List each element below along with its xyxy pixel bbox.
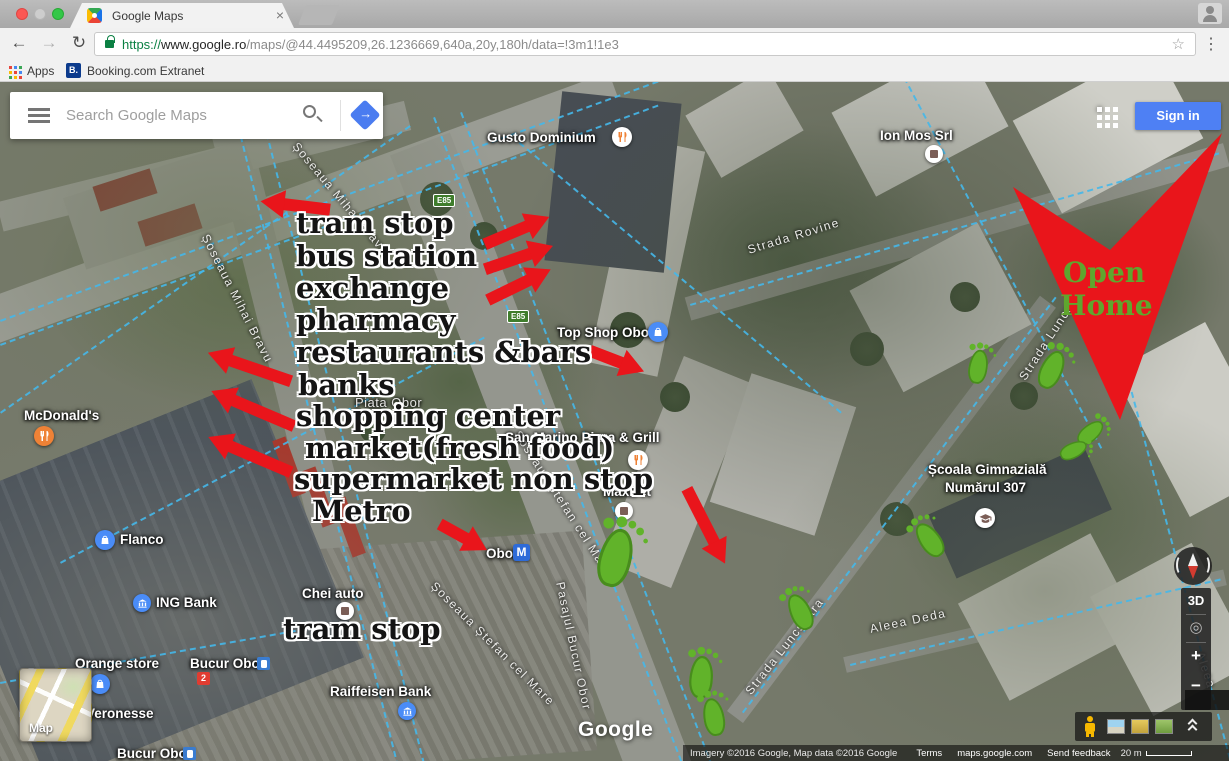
imagery-thumbnail[interactable] [1107, 719, 1125, 734]
attribution-bar: Imagery ©2016 Google, Map data ©2016 Goo… [683, 745, 1229, 761]
poi-label[interactable]: Veronesse [86, 706, 154, 721]
tram-glyph-icon [187, 750, 193, 758]
open-home-label-line1: Open [1063, 256, 1145, 289]
rotate-right-icon[interactable] [1200, 555, 1210, 575]
satellite-tint-overlay [0, 82, 1229, 761]
google-logo: Google [578, 718, 653, 742]
metro-station-icon[interactable]: M [513, 544, 530, 561]
annotation-text: banks [298, 368, 395, 402]
poi-label[interactable]: McDonald's [24, 408, 99, 423]
bank-icon[interactable] [398, 702, 416, 720]
apps-grid-icon[interactable] [9, 66, 12, 69]
footprint-toes [1081, 434, 1088, 441]
tab-title: Google Maps [112, 9, 183, 23]
rotate-left-icon[interactable] [1176, 555, 1186, 575]
shopping-icon[interactable] [90, 674, 110, 694]
bookmark-apps[interactable]: Apps [27, 64, 54, 78]
footprint-toes [1046, 341, 1056, 351]
bank-icon[interactable] [133, 594, 151, 612]
route-badge-e85: E85 [507, 310, 529, 323]
footprint-toes [969, 343, 976, 350]
annotation-text: market(fresh food) [305, 431, 614, 465]
window-close-button[interactable] [16, 8, 28, 20]
imagery-toolbar [1075, 712, 1212, 741]
tram-station-icon[interactable] [257, 657, 270, 670]
browser-toolbar: ← → ↻ https://www.google.ro/maps/@44.449… [0, 28, 1229, 60]
bookmark-booking[interactable]: Booking.com Extranet [87, 64, 204, 78]
scale-bar [1146, 751, 1192, 756]
annotation-text: Metro [312, 494, 411, 528]
zoom-in-button[interactable]: + [1181, 646, 1211, 666]
poi-label[interactable]: Gusto Dominium [487, 130, 596, 145]
poi-label[interactable]: Bucur Obor [117, 746, 192, 761]
browser-titlebar: Google Maps × [0, 0, 1229, 28]
tram-station-icon[interactable] [183, 747, 196, 760]
annotation-text: tram stop [283, 612, 441, 646]
my-location-button[interactable]: ◎ [1181, 618, 1211, 636]
maps-site-link[interactable]: maps.google.com [957, 748, 1032, 759]
annotation-text: restaurants &bars [296, 335, 591, 369]
shopping-icon[interactable] [95, 530, 115, 550]
3d-button[interactable]: 3D [1181, 593, 1211, 608]
bookmarks-bar: Apps B. Booking.com Extranet [0, 60, 1229, 82]
sign-in-button[interactable]: Sign in [1135, 102, 1221, 130]
tram-glyph-icon [261, 660, 267, 668]
imagery-panel-edge [1185, 690, 1229, 710]
footprint-toes [1094, 412, 1102, 420]
imagery-thumbnail[interactable] [1155, 719, 1173, 734]
new-tab-button[interactable] [298, 5, 340, 25]
restaurant-icon[interactable] [34, 426, 54, 446]
search-card: → [10, 92, 383, 139]
compass-needle-north [1188, 553, 1198, 566]
annotation-text: supermarket non stop [294, 462, 653, 496]
booking-favicon-icon: B. [66, 63, 81, 78]
forward-button[interactable]: → [38, 33, 60, 53]
place-icon[interactable] [925, 145, 943, 163]
url-host: www.google.ro [161, 37, 246, 52]
google-apps-grid-icon[interactable] [1097, 107, 1102, 112]
footprint-sole [592, 525, 639, 590]
compass-needle-south [1188, 566, 1198, 579]
shopping-icon[interactable] [648, 322, 668, 342]
menu-hamburger-icon[interactable] [28, 108, 50, 123]
annotation-text: pharmacy [296, 303, 455, 337]
browser-tab[interactable]: Google Maps × [70, 3, 294, 28]
place-glyph-icon [930, 150, 938, 158]
route-badge-2: 2 [197, 672, 210, 685]
map-canvas[interactable]: Șoseaua Mihai Bravu Șoseaua Mihai Bravu … [0, 82, 1229, 761]
poi-label[interactable]: Raiffeisen Bank [330, 684, 431, 699]
compass-control[interactable] [1174, 547, 1212, 585]
url-bar[interactable]: https://www.google.ro/maps/@44.4495209,2… [94, 32, 1196, 56]
open-home-label-line2: Home [1060, 289, 1153, 322]
poi-label[interactable]: Ion Mos Srl [880, 128, 953, 143]
url-scheme: https:// [122, 37, 161, 52]
send-feedback-link[interactable]: Send feedback [1047, 748, 1110, 759]
footprint-sole [700, 697, 727, 738]
annotation-text: bus station [296, 239, 477, 273]
expand-chevron-icon[interactable] [1189, 720, 1198, 729]
map-inset-toggle[interactable]: Map [19, 668, 92, 742]
tab-close-icon[interactable]: × [276, 7, 284, 23]
google-maps-favicon-icon [87, 8, 102, 23]
search-input[interactable] [66, 102, 286, 129]
profile-icon[interactable] [1198, 3, 1222, 24]
footprint-toes [905, 524, 915, 534]
school-icon[interactable] [975, 508, 995, 528]
profile-head-icon [1206, 6, 1214, 14]
footprint-toes [778, 593, 787, 602]
browser-menu-icon[interactable]: ⋮ [1203, 34, 1219, 54]
bookmark-star-icon[interactable]: ☆ [1172, 35, 1185, 53]
reload-button[interactable]: ↻ [68, 33, 90, 53]
back-button[interactable]: ← [8, 33, 30, 53]
imagery-thumbnail[interactable] [1131, 719, 1149, 734]
terms-link[interactable]: Terms [916, 748, 942, 759]
poi-label[interactable]: Chei auto [302, 586, 364, 601]
inset-map-label: Map [29, 721, 53, 735]
pegman-icon[interactable] [1084, 716, 1096, 737]
annotation-text: exchange [296, 271, 449, 305]
profile-shoulders-icon [1203, 15, 1217, 22]
url-path: /maps/@44.4495209,26.1236669,640a,20y,18… [246, 37, 619, 52]
annotation-text: shopping center [296, 399, 560, 433]
footprint-toes [696, 695, 704, 703]
footprint-toes [688, 649, 696, 657]
search-icon[interactable] [303, 105, 316, 118]
annotation-text: tram stop [296, 206, 454, 240]
directions-icon[interactable]: → [349, 99, 380, 130]
url-text: https://www.google.ro/maps/@44.4495209,2… [122, 37, 619, 52]
poi-label[interactable]: Bucur Obor [190, 656, 265, 671]
footprint-toes [602, 516, 615, 529]
window-minimize-button[interactable] [34, 8, 46, 20]
poi-label[interactable]: Flanco [120, 532, 164, 547]
footprint-sole [966, 348, 991, 385]
secure-padlock-icon [105, 40, 114, 48]
directions-arrow-glyph: → [359, 106, 372, 121]
attribution-text: Imagery ©2016 Google, Map data ©2016 Goo… [690, 748, 897, 759]
scale-label: 20 m [1121, 748, 1142, 759]
search-divider [340, 100, 341, 131]
poi-label-line1[interactable]: Școala Gimnazială [928, 462, 1047, 477]
poi-label-line2[interactable]: Numărul 307 [945, 480, 1026, 495]
restaurant-icon[interactable] [612, 127, 632, 147]
window-zoom-button[interactable] [52, 8, 64, 20]
poi-label[interactable]: ING Bank [156, 595, 217, 610]
